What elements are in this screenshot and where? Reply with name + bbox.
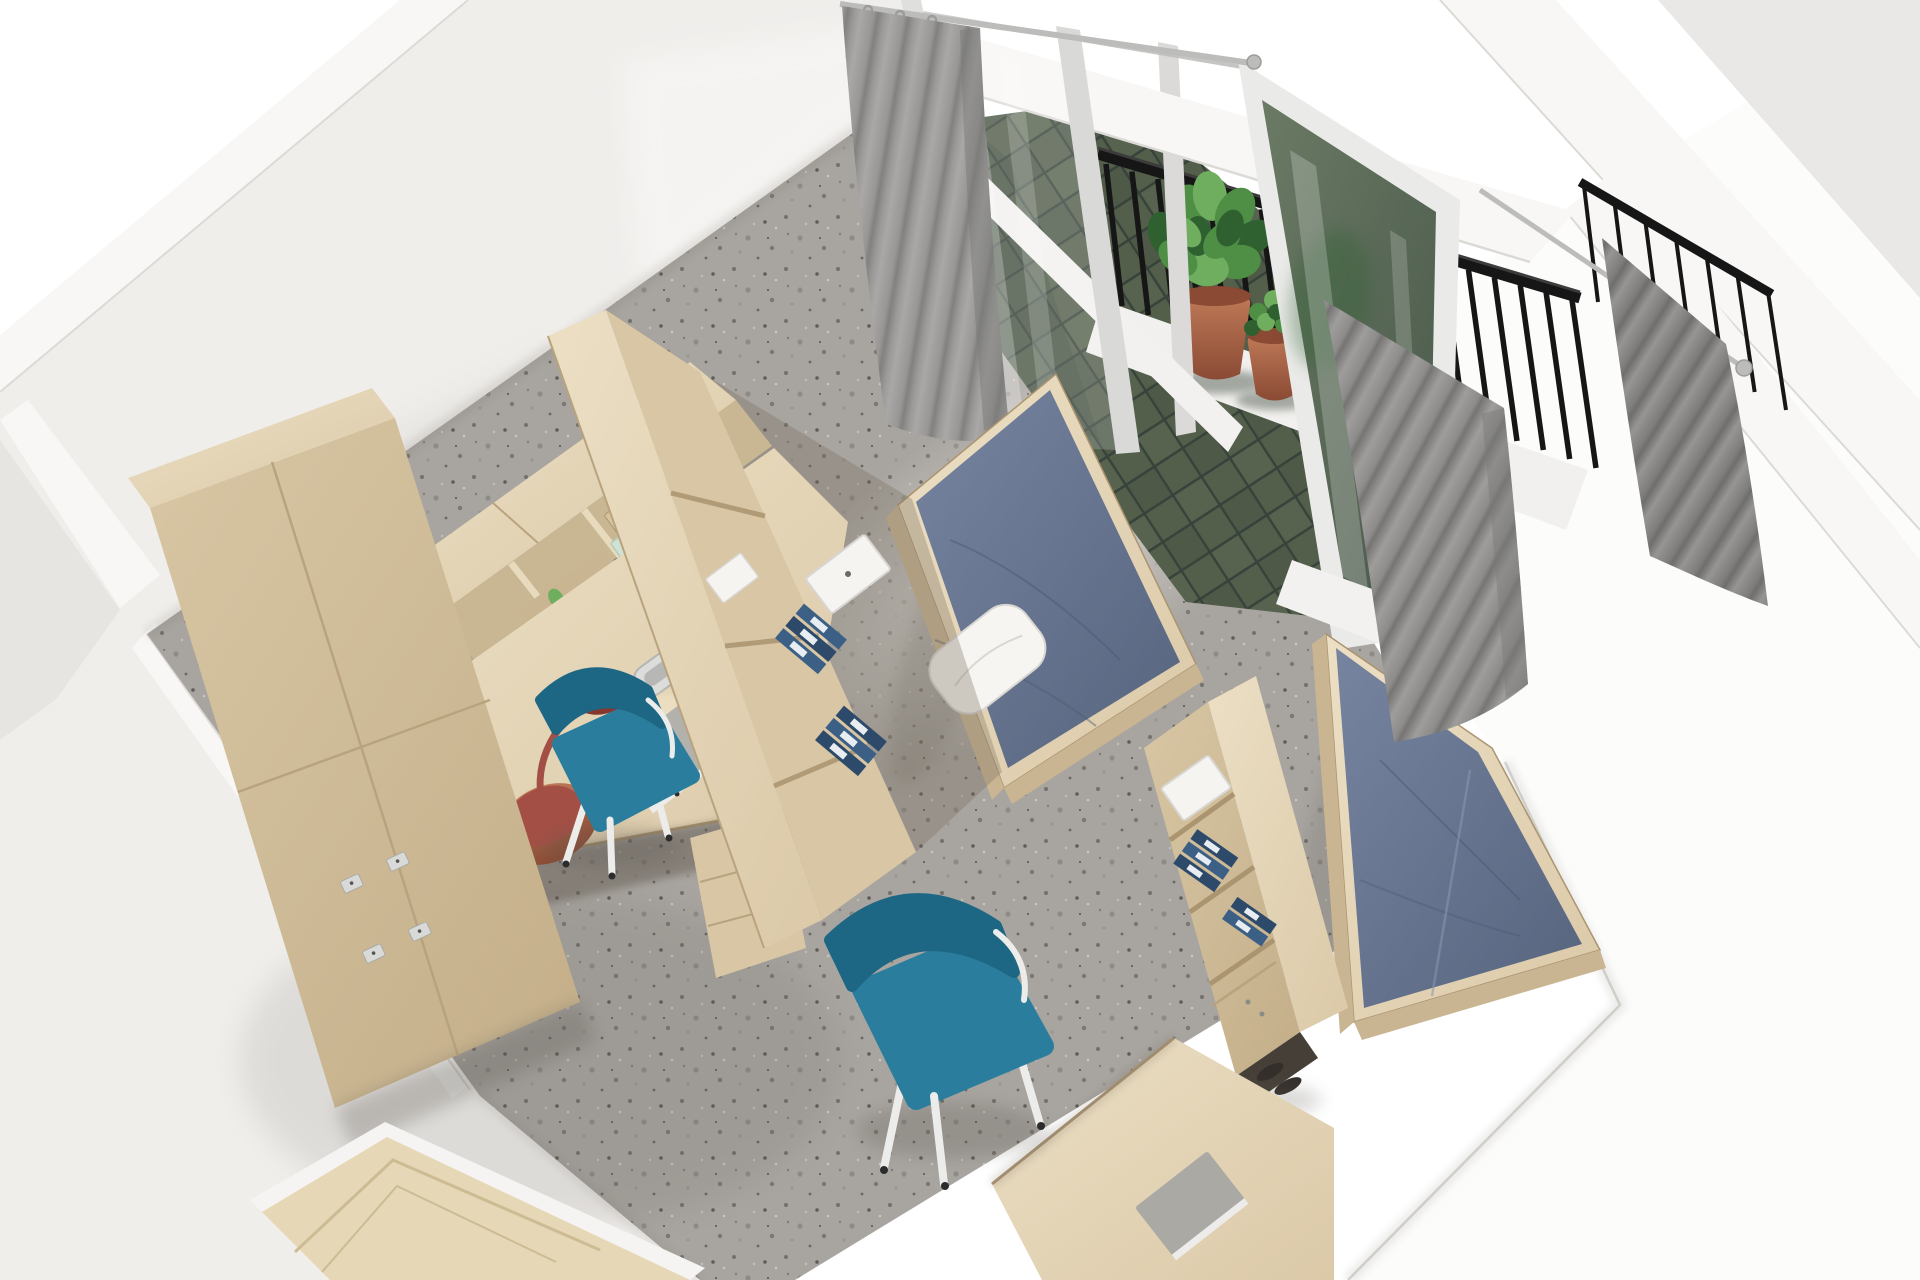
chair-foot [666,835,673,842]
cabinet-handle [1246,1000,1251,1005]
rod-finial [1736,360,1752,376]
dorm-room-render [0,0,1920,1280]
render-viewport [0,0,1920,1280]
chair-leg [610,820,612,874]
cabinet-handle [1260,1012,1265,1017]
chair-foot [880,1166,888,1174]
chair-foot [563,861,570,868]
rod-finial [1247,55,1261,69]
chair-foot [609,873,616,880]
chair-foot [941,1182,949,1190]
chair-foot [1037,1122,1045,1130]
